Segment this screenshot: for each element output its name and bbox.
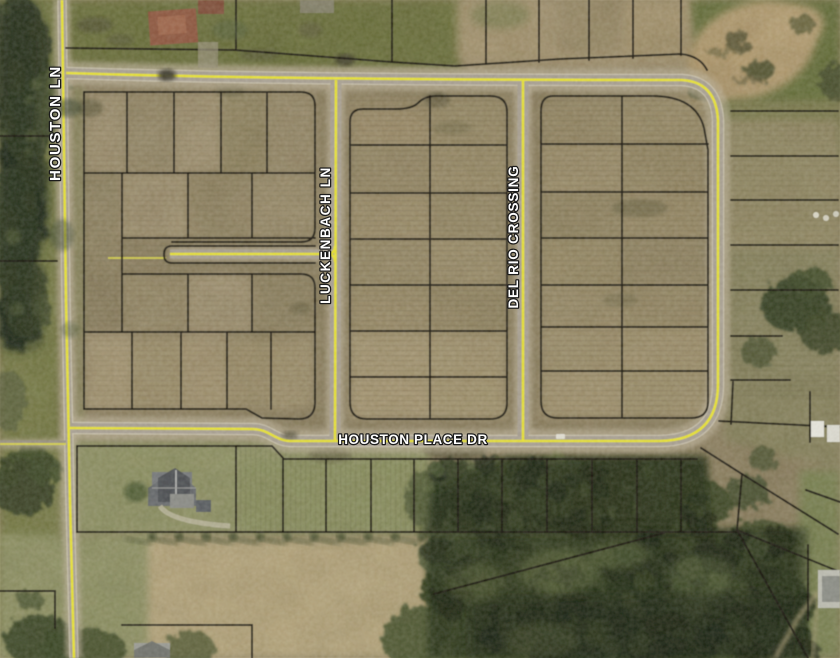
svg-text:HOUSTON PLACE DR: HOUSTON PLACE DR bbox=[338, 432, 488, 447]
svg-text:DEL RIO CROSSING: DEL RIO CROSSING bbox=[506, 165, 521, 308]
svg-text:HOUSTON LN: HOUSTON LN bbox=[47, 65, 64, 181]
svg-text:LUCKENBACH LN: LUCKENBACH LN bbox=[318, 166, 333, 304]
